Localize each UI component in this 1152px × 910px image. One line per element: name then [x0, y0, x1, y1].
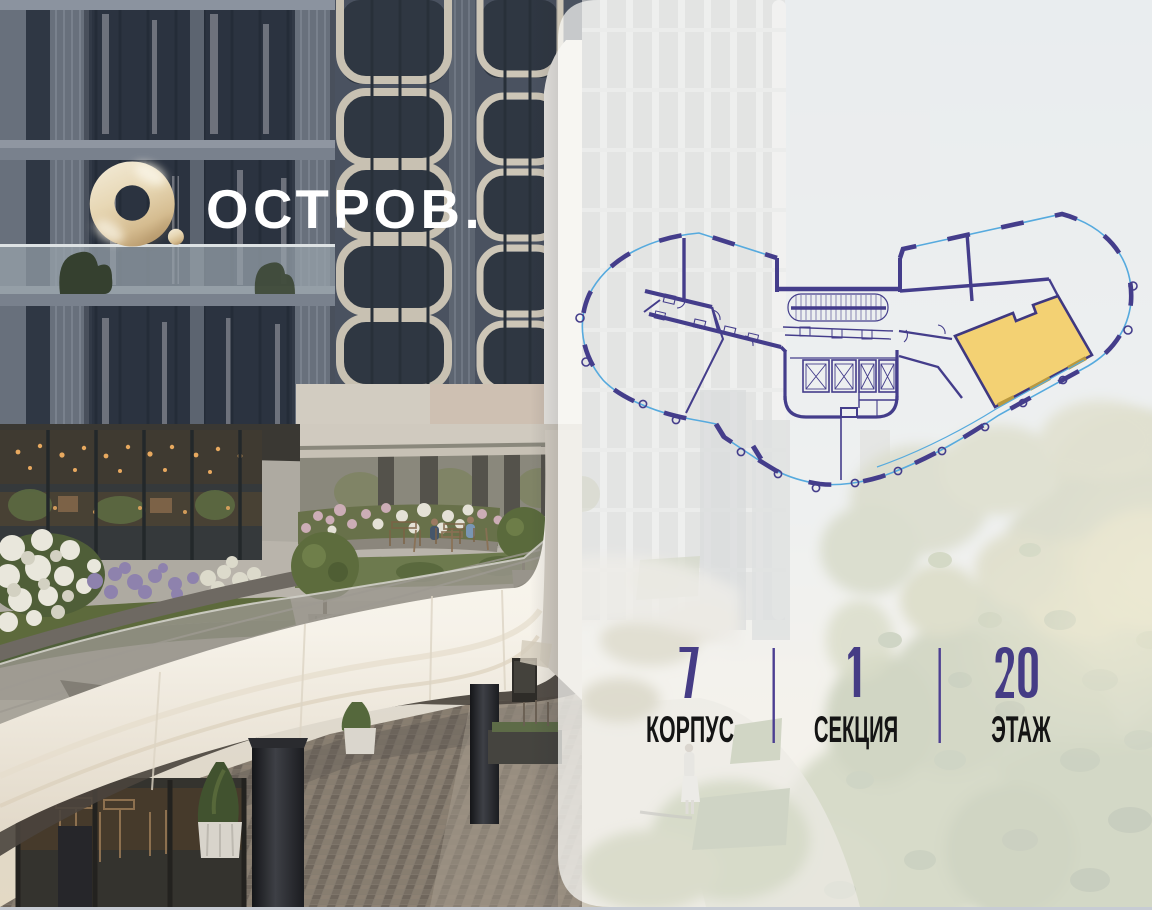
svg-text:ОСТРОВ.: ОСТРОВ.: [206, 179, 484, 240]
svg-text:ЭТАЖ: ЭТАЖ: [991, 710, 1051, 751]
svg-text:КОРПУС: КОРПУС: [646, 709, 734, 751]
svg-text:СЕКЦИЯ: СЕКЦИЯ: [814, 710, 898, 751]
